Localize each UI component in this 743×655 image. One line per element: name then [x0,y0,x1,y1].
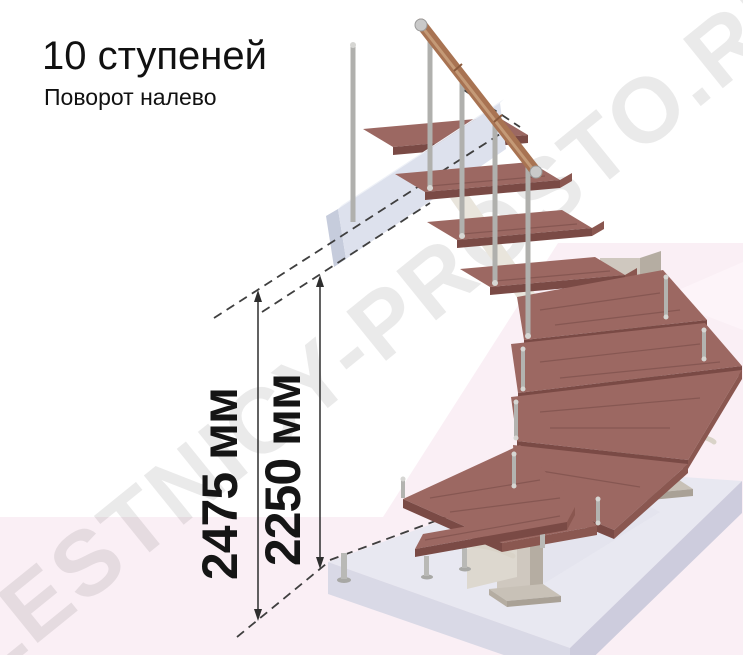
page-subtitle: Поворот налево [44,84,267,111]
dimension-total-height-label: 2475 мм [192,388,248,580]
title-block: 10 ступеней Поворот налево [42,34,267,111]
landing-guard-post [350,42,356,222]
staircase-diagram-page: LESTNICY-PROSTO.RU [0,0,743,655]
page-title: 10 ступеней [42,34,267,78]
dimension-clear-height-label: 2250 мм [255,374,311,566]
